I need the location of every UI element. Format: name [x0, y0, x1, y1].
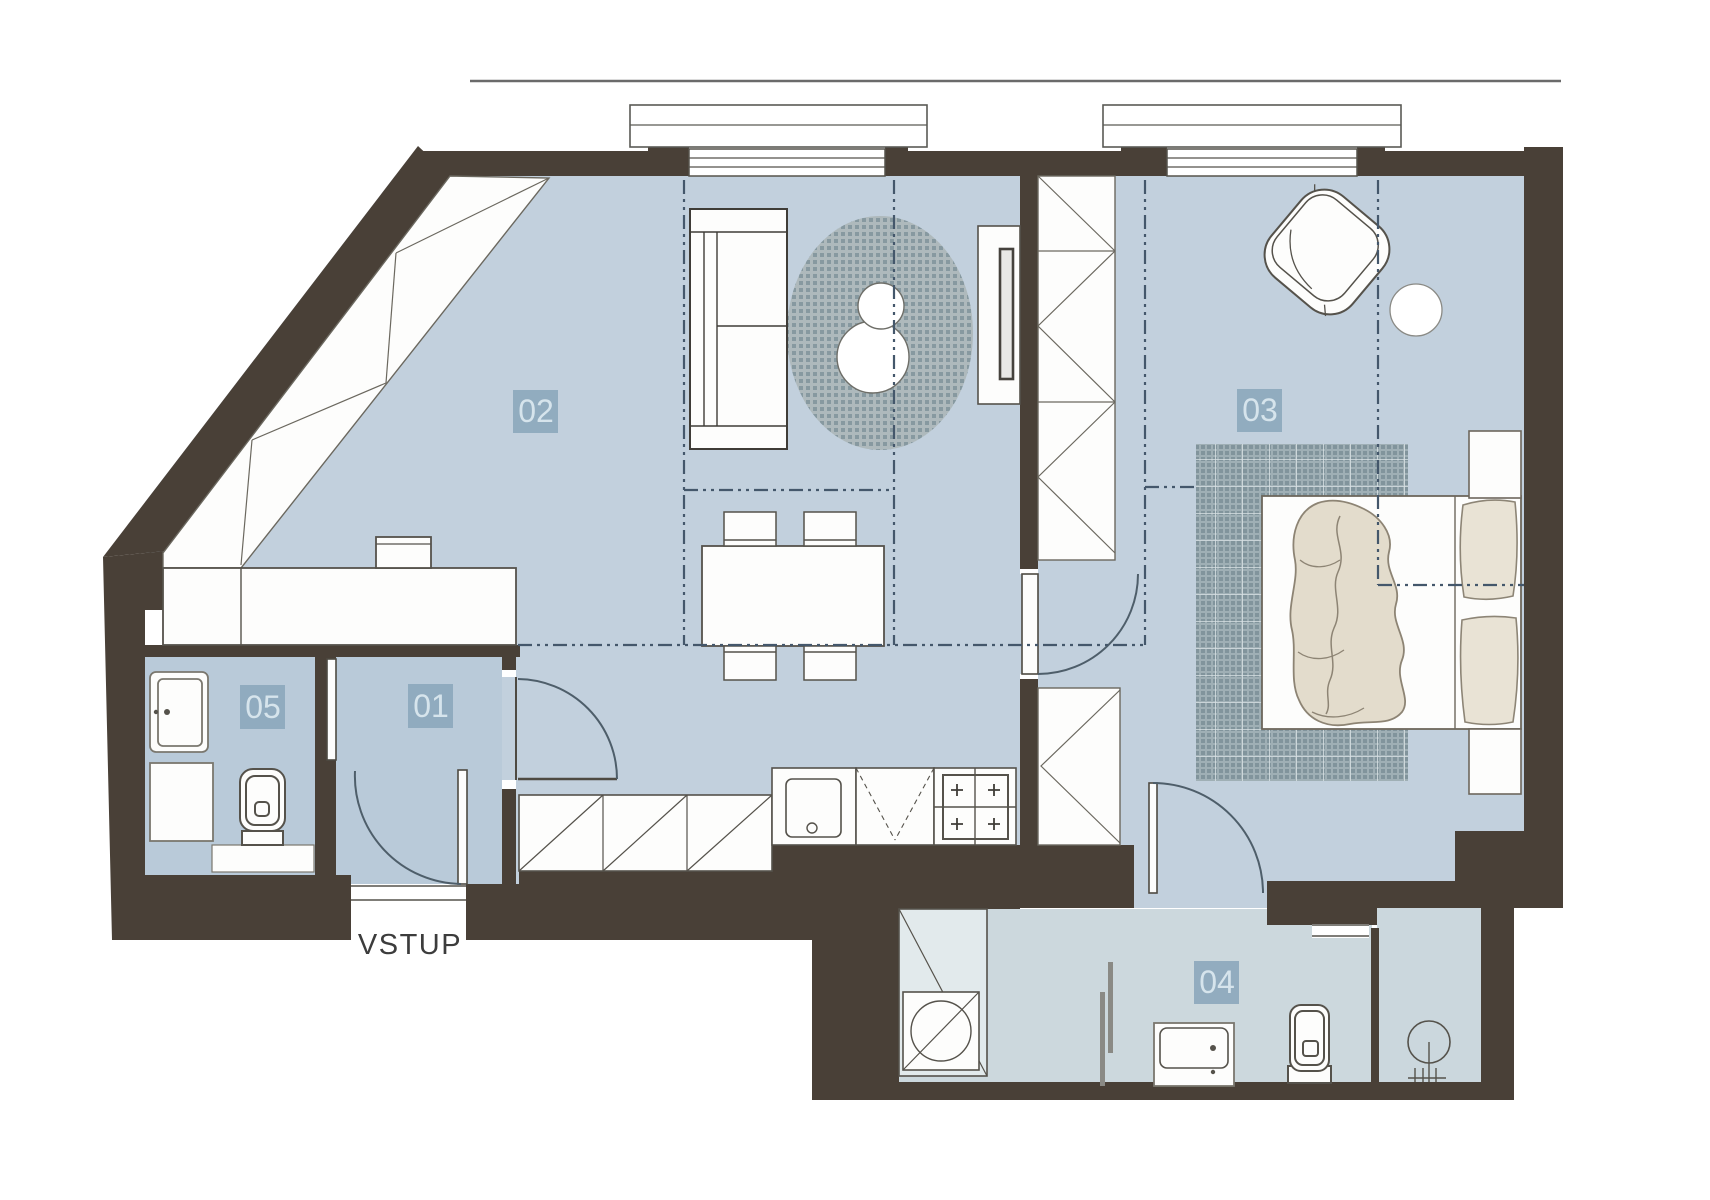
- svg-text:04: 04: [1199, 964, 1235, 1000]
- svg-text:02: 02: [518, 393, 554, 429]
- svg-text:03: 03: [1242, 392, 1278, 428]
- svg-text:01: 01: [413, 688, 449, 724]
- svg-text:05: 05: [245, 689, 281, 725]
- svg-text:VSTUP: VSTUP: [358, 929, 462, 961]
